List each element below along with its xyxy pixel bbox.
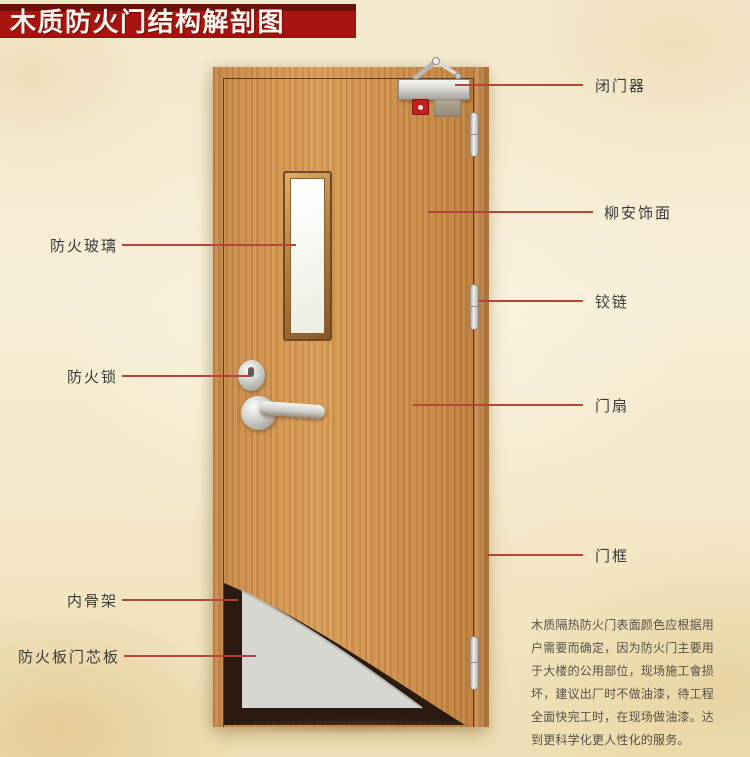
leader-line-door-leaf xyxy=(413,404,583,406)
label-door-frame: 门框 xyxy=(595,545,629,566)
fire-door-illustration xyxy=(213,67,489,727)
page-title: 木质防火门结构解剖图 xyxy=(0,8,285,38)
label-fire-lock: 防火锁 xyxy=(67,366,118,387)
fire-glass-window xyxy=(283,171,332,341)
leader-line-inner-skeleton xyxy=(122,599,238,601)
door-closer-icon xyxy=(398,79,470,100)
alarm-indicator-icon xyxy=(412,99,429,115)
leader-line-veneer xyxy=(428,211,593,213)
label-fire-board-core: 防火板门芯板 xyxy=(18,646,120,667)
cutaway-section xyxy=(213,567,489,727)
leader-line-door-frame xyxy=(487,554,583,556)
label-inner-skeleton: 内骨架 xyxy=(67,590,118,611)
glass-pane xyxy=(290,178,325,334)
hinge-top-icon xyxy=(469,112,479,157)
label-door-leaf: 门扇 xyxy=(595,395,629,416)
leader-line-door-closer xyxy=(455,84,583,86)
label-veneer: 柳安饰面 xyxy=(604,202,672,223)
hinge-middle-icon xyxy=(469,284,479,330)
leader-line-fire-lock xyxy=(122,375,250,377)
indicator-dot xyxy=(418,105,423,110)
leader-line-fire-glass xyxy=(122,244,296,246)
label-fire-glass: 防火玻璃 xyxy=(50,235,118,256)
leader-line-hinge xyxy=(478,300,583,302)
leader-line-fire-board-core xyxy=(124,655,256,657)
title-banner: 木质防火门结构解剖图 xyxy=(0,4,356,38)
label-hinge: 铰链 xyxy=(595,291,629,312)
door-shadow xyxy=(210,718,500,734)
product-description: 木质隔热防火门表面颜色应根据用户需要而确定，因为防火门主要用于大楼的公用部位，现… xyxy=(531,614,725,752)
wall-patch xyxy=(434,99,461,117)
infographic-canvas: 木质防火门结构解剖图 xyxy=(0,0,750,757)
label-door-closer: 闭门器 xyxy=(595,75,646,96)
